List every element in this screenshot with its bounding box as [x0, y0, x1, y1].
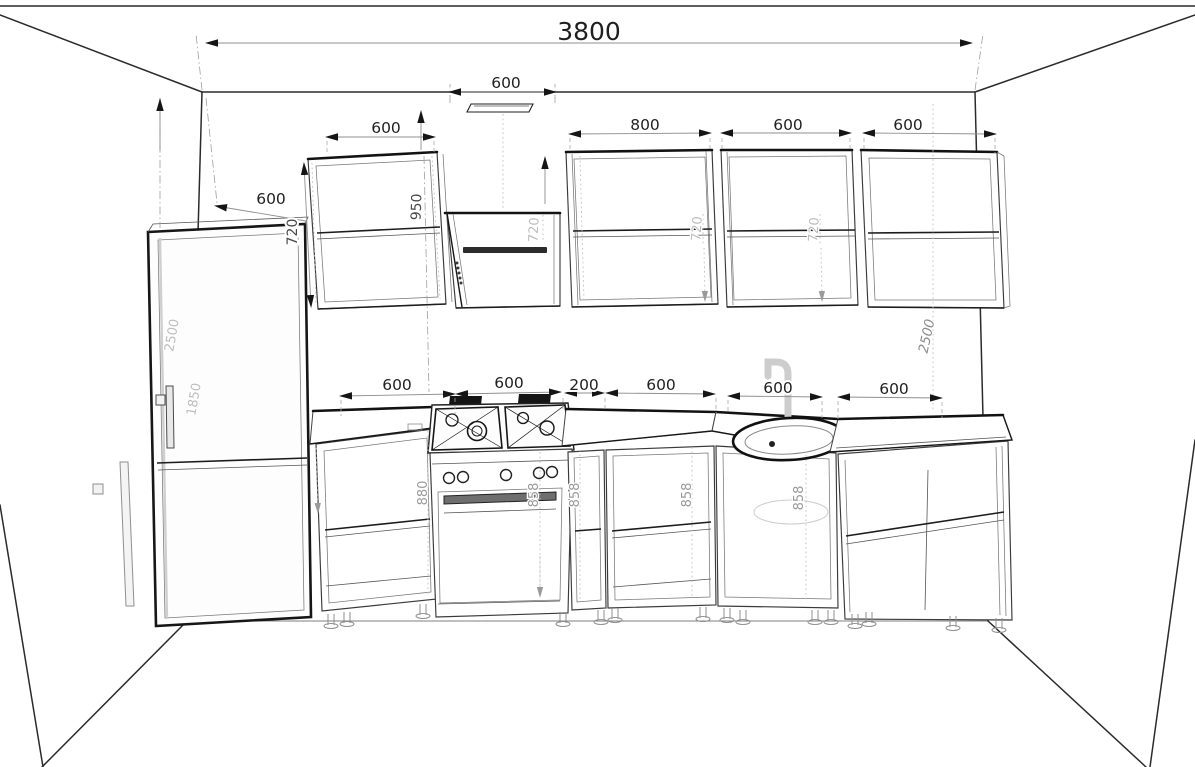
kitchen-elevation-svg: 3800 600 600 600 800 600 600 600 600 200… [0, 0, 1195, 767]
dim-room-height-right: 2500 [916, 318, 939, 355]
fridge [93, 217, 311, 626]
dim-fridge-width: 600 [256, 190, 286, 208]
hood-handle [463, 247, 547, 253]
base-cabinet-right [838, 441, 1012, 620]
countertop-middle [562, 409, 716, 446]
sink-drain [769, 441, 775, 447]
kitchen-drawing-canvas: 3800 600 600 600 800 600 600 600 600 200… [0, 0, 1195, 767]
dim-upper-left-width: 600 [371, 119, 401, 137]
base-cabinet-200 [568, 450, 606, 610]
ceiling-vent-plate [467, 104, 533, 210]
fridge-handle-lower [93, 462, 134, 606]
dim-upper-600b-width: 600 [893, 116, 923, 134]
dim-base-width-6: 600 [879, 380, 909, 398]
dim-upper-600b-height: 720 [806, 217, 823, 243]
dim-base-height-left: 880 [416, 481, 431, 506]
dim-base-height-858-a: 858 [527, 483, 542, 508]
dim-base-width-3: 200 [569, 376, 599, 394]
base-cabinet-left [316, 429, 437, 611]
dim-upper-800-width: 800 [630, 116, 660, 134]
stove [428, 394, 574, 617]
dim-hood-height: 720 [526, 217, 542, 243]
dim-base-height-858-b: 858 [568, 483, 583, 508]
base-cabinet-600 [606, 446, 716, 608]
upper-cabinet-left [308, 152, 452, 309]
dim-upper-600a-width: 600 [773, 116, 803, 134]
dim-base-width-1: 600 [382, 376, 412, 394]
dim-upper-left-height: 950 [409, 193, 426, 220]
cooker-hood [445, 213, 560, 308]
dim-base-width-4: 600 [646, 376, 676, 394]
upper-cabinet-600-b [861, 150, 1010, 308]
sink-cabinet [716, 446, 838, 608]
upper-cabinet-600-a [721, 150, 858, 307]
dim-base-width-2: 600 [494, 374, 524, 392]
dim-total-width: 3800 [557, 17, 621, 46]
dim-base-width-5: 600 [763, 379, 793, 397]
dim-base-height-858-d: 858 [792, 486, 807, 511]
dim-hood-width: 600 [491, 74, 521, 92]
dim-upper-left-side-height: 720 [285, 219, 301, 246]
dim-base-height-858-c: 858 [680, 483, 695, 508]
dim-upper-600a-height: 720 [689, 216, 706, 242]
